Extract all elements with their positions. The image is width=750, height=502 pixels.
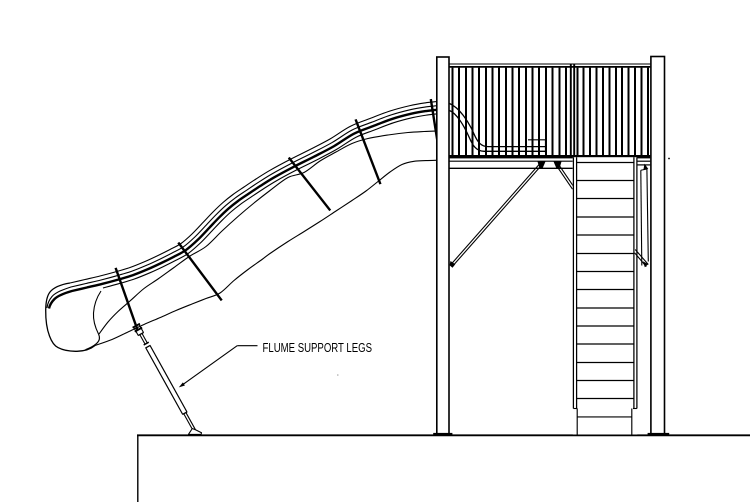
- svg-text:FLUME SUPPORT LEGS: FLUME SUPPORT LEGS: [263, 340, 373, 355]
